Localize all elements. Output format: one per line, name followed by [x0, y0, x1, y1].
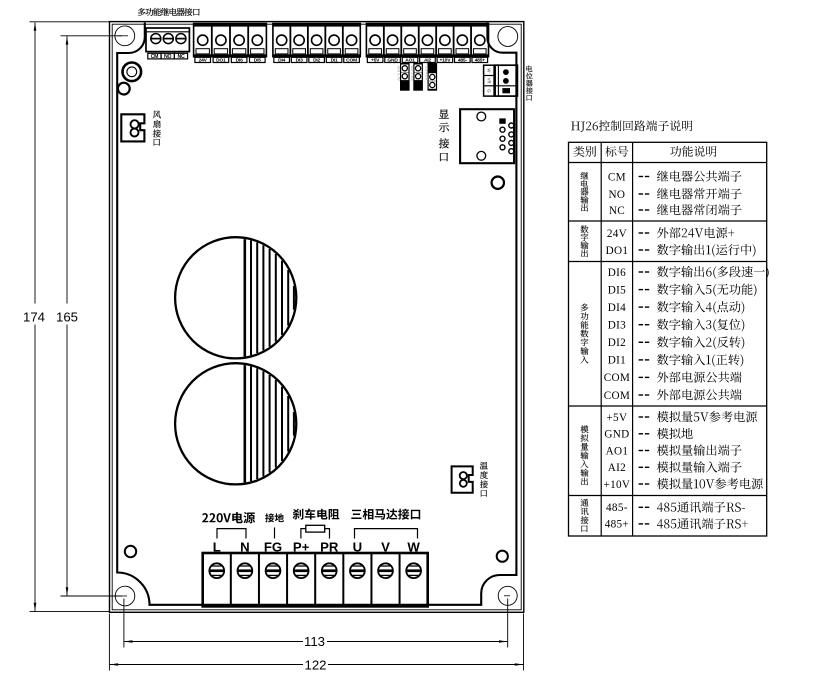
svg-text:AO1 0~5V: AO1 0~5V	[396, 66, 400, 82]
svg-text:DI4: DI4	[278, 58, 285, 64]
svg-text:N: N	[240, 540, 250, 555]
svg-text:174: 174	[23, 310, 45, 325]
svg-text:DI6: DI6	[236, 58, 243, 64]
svg-text:CM: CM	[608, 171, 626, 183]
svg-text:DI2: DI2	[313, 58, 320, 64]
svg-text:V: V	[381, 540, 390, 555]
svg-text:AI2 0~10V: AI2 0~10V	[410, 66, 414, 82]
svg-text:DO1: DO1	[216, 58, 226, 64]
svg-text:24V: 24V	[199, 58, 208, 64]
svg-text:FG: FG	[264, 540, 282, 555]
svg-text:W: W	[487, 68, 492, 72]
svg-text:DI2: DI2	[608, 337, 626, 349]
svg-text:AO1: AO1	[405, 58, 415, 64]
svg-text:AI2: AI2	[424, 58, 431, 64]
svg-text:NO: NO	[164, 54, 172, 60]
svg-text:+10V: +10V	[604, 479, 631, 491]
svg-text:DI1: DI1	[608, 355, 626, 367]
svg-text:DI5: DI5	[608, 284, 626, 296]
svg-text:P+: P+	[293, 540, 310, 555]
svg-text:10V 485R: 10V 485R	[424, 66, 428, 81]
svg-text:DI6: DI6	[608, 267, 626, 279]
svg-text:485+: 485+	[605, 519, 629, 531]
svg-text:GND: GND	[387, 58, 398, 64]
svg-text:DI3: DI3	[608, 320, 626, 332]
svg-text:485+: 485+	[475, 58, 486, 64]
svg-text:NO: NO	[609, 189, 626, 201]
svg-text:DI3: DI3	[296, 58, 303, 64]
svg-text:485-: 485-	[458, 58, 468, 64]
svg-text:165: 165	[56, 310, 78, 325]
svg-text:GND: GND	[604, 429, 629, 441]
svg-text:W: W	[407, 540, 420, 555]
svg-text:DI4: DI4	[608, 302, 626, 314]
svg-text:NC: NC	[609, 205, 625, 217]
svg-text:DI5: DI5	[254, 58, 261, 64]
svg-text:G: G	[487, 89, 492, 92]
svg-text:485-: 485-	[606, 502, 628, 514]
svg-text:L: L	[213, 540, 221, 555]
svg-text:COM: COM	[604, 372, 630, 384]
svg-text:VR: VR	[487, 78, 492, 84]
svg-text:U: U	[353, 540, 363, 555]
svg-text:CM: CM	[151, 54, 159, 60]
svg-text:DO1: DO1	[606, 245, 629, 257]
svg-text:NC: NC	[177, 54, 185, 60]
svg-text:COM: COM	[346, 58, 357, 64]
svg-text:AO1: AO1	[606, 445, 629, 457]
svg-text:24V: 24V	[607, 228, 627, 240]
svg-text:122: 122	[304, 657, 326, 672]
svg-text:DI1: DI1	[331, 58, 338, 64]
svg-text:+10V: +10V	[440, 58, 452, 64]
svg-text:+5V: +5V	[606, 412, 627, 424]
svg-text:AI2: AI2	[608, 462, 626, 474]
svg-text:PR: PR	[320, 540, 339, 555]
svg-text:+5V: +5V	[371, 58, 380, 64]
svg-text:COM: COM	[604, 390, 630, 402]
svg-text:113: 113	[304, 634, 325, 649]
